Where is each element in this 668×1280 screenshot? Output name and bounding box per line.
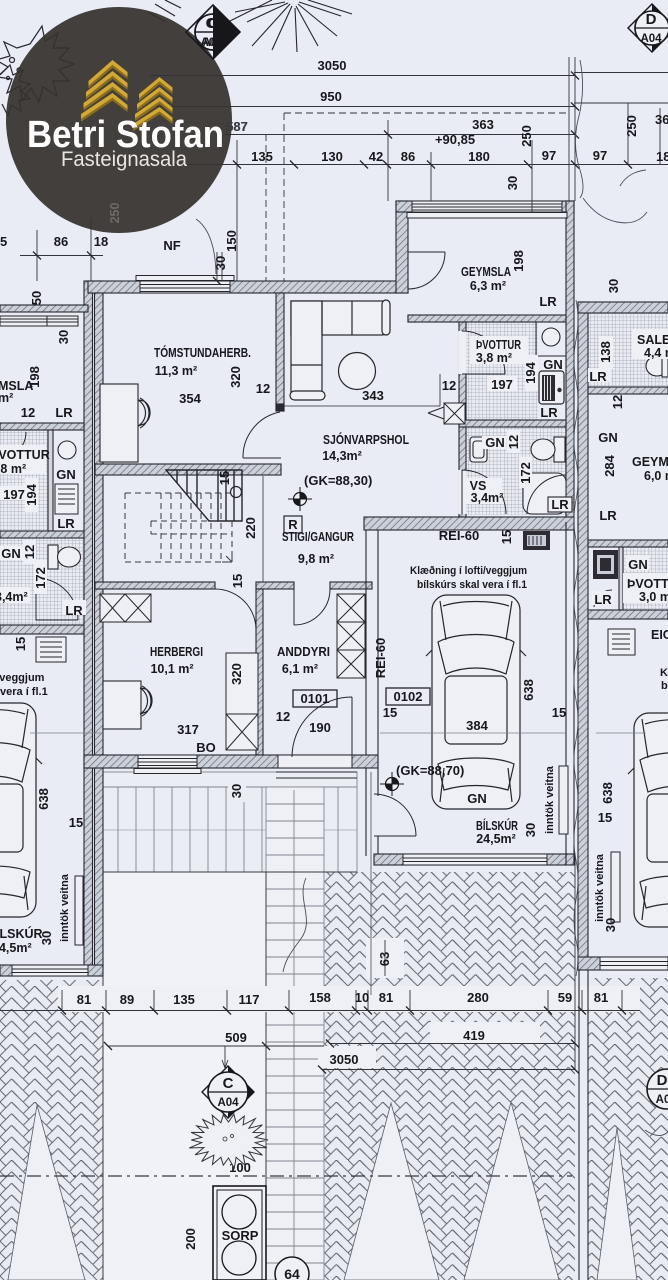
- svg-text:15: 15: [13, 637, 28, 651]
- svg-text:A04: A04: [217, 1097, 239, 1109]
- svg-text:138: 138: [598, 341, 613, 363]
- svg-text:15: 15: [69, 815, 83, 830]
- svg-text:15: 15: [552, 705, 566, 720]
- svg-text:(GK=88,30): (GK=88,30): [304, 473, 372, 488]
- svg-text:30: 30: [229, 784, 244, 798]
- svg-text:18: 18: [94, 234, 108, 249]
- svg-text:150: 150: [224, 230, 239, 252]
- svg-text:HERBERGI: HERBERGI: [150, 645, 203, 659]
- svg-text:30: 30: [56, 330, 71, 344]
- svg-text:LR: LR: [589, 369, 607, 384]
- svg-text:6,3 m²: 6,3 m²: [470, 279, 506, 293]
- svg-text:A04: A04: [200, 37, 222, 49]
- svg-text:320: 320: [228, 366, 243, 388]
- svg-text:172: 172: [518, 462, 533, 484]
- svg-text:81: 81: [594, 990, 608, 1005]
- svg-text:LR: LR: [551, 497, 569, 512]
- svg-text:11,3 m²: 11,3 m²: [155, 364, 197, 378]
- svg-text:3,8 m²: 3,8 m²: [0, 462, 26, 476]
- svg-text:117: 117: [239, 992, 260, 1007]
- svg-text:0101: 0101: [301, 691, 330, 706]
- svg-text:172: 172: [33, 567, 48, 589]
- svg-text:bílskúrs skal vera í fl.1: bílskúrs skal vera í fl.1: [417, 579, 527, 591]
- svg-text:15: 15: [230, 574, 245, 588]
- svg-text:587: 587: [227, 120, 248, 134]
- svg-text:63: 63: [377, 952, 392, 966]
- svg-text:SJÓNVARPSHOL: SJÓNVARPSHOL: [323, 432, 409, 447]
- svg-text:638: 638: [521, 679, 536, 701]
- svg-text:vera í fl.1: vera í fl.1: [0, 686, 48, 698]
- svg-text:lofti/veggjum: lofti/veggjum: [0, 672, 45, 684]
- svg-text:b: b: [661, 680, 668, 692]
- svg-text:317: 317: [177, 722, 199, 737]
- svg-text:3,0 m²: 3,0 m²: [639, 590, 668, 604]
- svg-text:64: 64: [284, 1266, 300, 1280]
- svg-text:LR: LR: [57, 516, 75, 531]
- svg-text:24,5m²: 24,5m²: [0, 941, 32, 955]
- svg-text:81: 81: [379, 990, 393, 1005]
- svg-text:REI-60: REI-60: [439, 528, 479, 543]
- svg-text:384: 384: [466, 718, 488, 733]
- svg-text:3,8 m²: 3,8 m²: [476, 351, 512, 365]
- svg-text:419: 419: [463, 1028, 485, 1043]
- svg-text:A04: A04: [640, 33, 662, 45]
- svg-text:12: 12: [506, 435, 521, 449]
- svg-text:inntök veitna: inntök veitna: [594, 853, 606, 922]
- svg-text:GEYMSLA: GEYMSLA: [461, 265, 511, 279]
- svg-text:15: 15: [598, 810, 612, 825]
- svg-text:TÓMSTUNDAHERB.: TÓMSTUNDAHERB.: [154, 345, 251, 360]
- svg-text:LR: LR: [65, 603, 83, 618]
- svg-text:220: 220: [243, 517, 258, 539]
- svg-text:280: 280: [467, 990, 489, 1005]
- svg-text:BÍLSKÚR: BÍLSKÚR: [0, 926, 43, 941]
- svg-text:250: 250: [108, 203, 122, 224]
- svg-text:638: 638: [600, 782, 615, 804]
- svg-text:GN: GN: [1, 546, 21, 561]
- svg-text:3,4m²: 3,4m²: [0, 590, 28, 604]
- svg-text:197: 197: [491, 377, 513, 392]
- svg-text:59: 59: [558, 990, 572, 1005]
- svg-text:12: 12: [276, 709, 290, 724]
- svg-text:C: C: [206, 15, 217, 32]
- svg-text:0102: 0102: [394, 689, 423, 704]
- svg-text:284: 284: [602, 454, 617, 476]
- svg-text:250: 250: [624, 115, 639, 137]
- svg-text:NF: NF: [163, 238, 180, 253]
- svg-text:198: 198: [511, 250, 526, 272]
- svg-text:198: 198: [27, 366, 42, 388]
- svg-text:15: 15: [217, 471, 232, 485]
- svg-text:12: 12: [610, 395, 625, 409]
- svg-text:190: 190: [309, 720, 331, 735]
- svg-text:REI-60: REI-60: [373, 638, 388, 678]
- svg-text:180: 180: [468, 149, 490, 164]
- svg-text:194: 194: [523, 361, 538, 383]
- svg-text:86: 86: [401, 149, 415, 164]
- svg-text:97: 97: [593, 148, 607, 163]
- svg-text:12: 12: [21, 405, 35, 420]
- svg-text:42: 42: [369, 149, 383, 164]
- svg-text:200: 200: [183, 1228, 198, 1250]
- svg-text:89: 89: [120, 992, 134, 1007]
- svg-text:A0: A0: [656, 1094, 668, 1106]
- svg-text:250: 250: [519, 125, 534, 147]
- svg-text:950: 950: [320, 89, 342, 104]
- svg-text:ÞVOTTUR: ÞVOTTUR: [476, 338, 521, 352]
- svg-text:509: 509: [225, 1030, 247, 1045]
- svg-text:194: 194: [24, 483, 39, 505]
- svg-text:(GK=88,70): (GK=88,70): [396, 763, 464, 778]
- svg-text:10,1 m²: 10,1 m²: [150, 662, 193, 676]
- svg-text:6,1 m²: 6,1 m²: [282, 662, 318, 676]
- svg-text:BÍLSKÚR: BÍLSKÚR: [476, 818, 518, 833]
- svg-text:ÞVOTTUR: ÞVOTTUR: [627, 577, 668, 591]
- svg-text:GN: GN: [543, 357, 563, 372]
- svg-text:130: 130: [321, 149, 343, 164]
- svg-text:363: 363: [472, 117, 494, 132]
- svg-text:354: 354: [179, 391, 201, 406]
- svg-text:320: 320: [229, 663, 244, 685]
- svg-text:50: 50: [29, 291, 44, 305]
- svg-text:158: 158: [309, 990, 331, 1005]
- svg-text:6,0 m²: 6,0 m²: [644, 469, 668, 483]
- svg-text:Fasteignasala: Fasteignasala: [61, 148, 187, 171]
- svg-text:STIGI/GANGUR: STIGI/GANGUR: [282, 530, 354, 544]
- svg-text:30: 30: [523, 823, 538, 837]
- svg-text:SORP: SORP: [222, 1228, 259, 1243]
- svg-text:86: 86: [54, 234, 68, 249]
- svg-text:15: 15: [499, 530, 514, 544]
- svg-text:135: 135: [173, 992, 195, 1007]
- svg-text:D: D: [657, 1072, 668, 1089]
- svg-text:343: 343: [362, 388, 384, 403]
- svg-text:GN: GN: [56, 467, 76, 482]
- svg-text:135: 135: [251, 149, 273, 164]
- svg-text:3050: 3050: [318, 58, 347, 73]
- svg-text:97: 97: [542, 148, 556, 163]
- svg-text:30: 30: [606, 279, 621, 293]
- svg-text:EICS: EICS: [651, 628, 668, 642]
- svg-text:m²: m²: [0, 391, 13, 405]
- svg-text:BO: BO: [196, 740, 216, 755]
- svg-text:LR: LR: [594, 592, 612, 607]
- svg-text:638: 638: [36, 788, 51, 810]
- svg-text:LR: LR: [55, 405, 73, 420]
- svg-text:30: 30: [603, 918, 618, 932]
- svg-text:ANDDYRI: ANDDYRI: [277, 645, 330, 659]
- svg-text:12: 12: [442, 378, 456, 393]
- svg-text:inntök veitna: inntök veitna: [544, 765, 556, 834]
- svg-text:3,4m²: 3,4m²: [471, 491, 504, 505]
- svg-text:15: 15: [383, 705, 397, 720]
- svg-text:C: C: [223, 1075, 234, 1092]
- svg-text:GN: GN: [485, 435, 505, 450]
- svg-text:18: 18: [656, 149, 668, 164]
- svg-text:14,3m²: 14,3m²: [322, 449, 362, 463]
- svg-text:81: 81: [77, 992, 91, 1007]
- svg-text:9,8 m²: 9,8 m²: [298, 552, 334, 566]
- svg-text:10: 10: [355, 990, 369, 1005]
- svg-text:+90,85: +90,85: [435, 132, 475, 147]
- svg-text:5: 5: [0, 234, 7, 249]
- svg-text:GN: GN: [628, 557, 648, 572]
- svg-text:12: 12: [22, 545, 37, 559]
- svg-text:197: 197: [3, 487, 25, 502]
- svg-text:24,5m²: 24,5m²: [476, 832, 516, 846]
- svg-text:36: 36: [655, 112, 668, 127]
- svg-text:ÞVOTTUR: ÞVOTTUR: [0, 448, 50, 462]
- svg-text:inntök veitna: inntök veitna: [59, 873, 71, 942]
- svg-text:GN: GN: [598, 430, 618, 445]
- svg-text:LR: LR: [540, 405, 558, 420]
- svg-text:3050: 3050: [330, 1052, 359, 1067]
- svg-text:GEYMSLA: GEYMSLA: [632, 455, 668, 469]
- svg-text:D: D: [646, 11, 657, 28]
- svg-text:K: K: [660, 667, 668, 679]
- svg-text:LR: LR: [539, 294, 557, 309]
- svg-text:GN: GN: [467, 791, 487, 806]
- svg-text:LR: LR: [599, 508, 617, 523]
- svg-text:30: 30: [213, 256, 228, 270]
- svg-text:SALERNI: SALERNI: [637, 333, 668, 347]
- svg-text:30: 30: [505, 176, 520, 190]
- svg-text:Klæðning í lofti/veggjum: Klæðning í lofti/veggjum: [410, 565, 527, 577]
- svg-text:12: 12: [256, 381, 270, 396]
- svg-text:4,4 m²: 4,4 m²: [644, 346, 668, 360]
